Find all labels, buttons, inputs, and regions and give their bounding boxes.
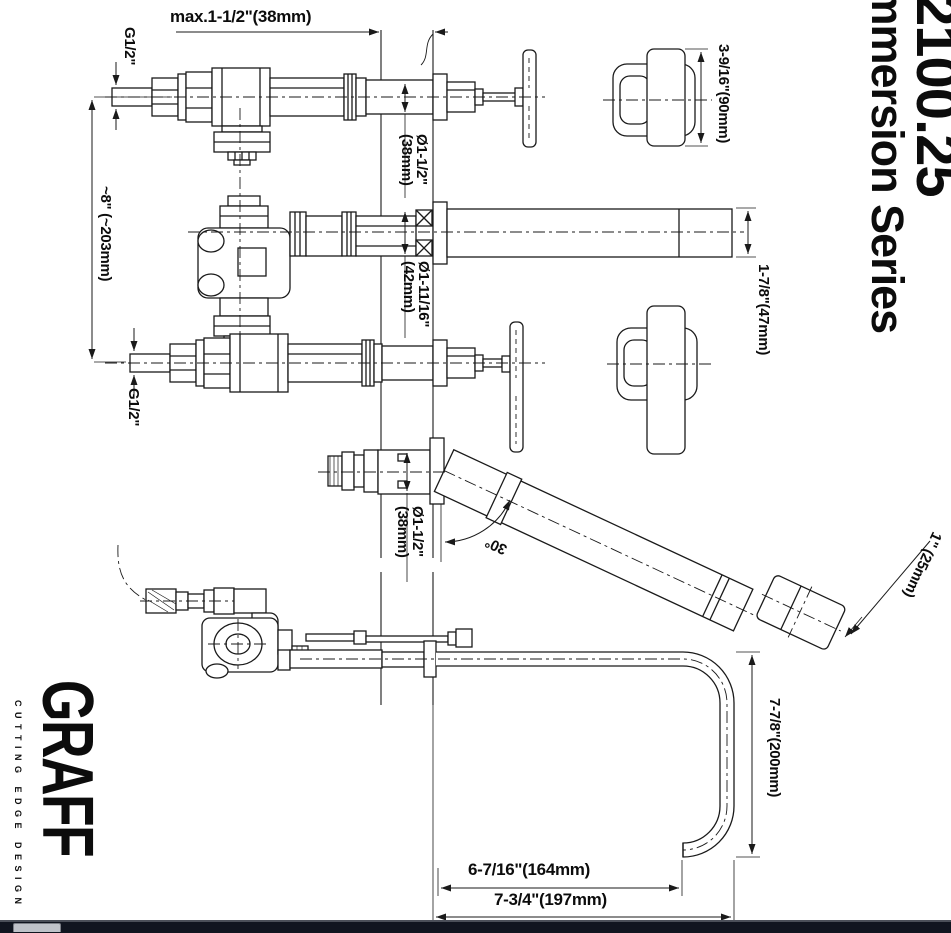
brand-tagline: CUTTING EDGE DESIGN [13,700,22,910]
handshower-tip-detail [750,569,853,657]
brand-logo: GRAFF [30,680,103,856]
dim-handle-detail: 3-9/16"(90mm) [716,44,731,143]
dim-hook-drop: 7-7/8"(200mm) [767,698,782,797]
dim-valve-escutcheon-dia: Ø1-1/2" (38mm) [398,134,429,186]
dim-spout-escutcheon-dia: Ø1-11/16" (42mm) [400,261,431,327]
spec-sheet-page: max.1-1/2"(38mm) G1/2" G1/2" ~8" (~203mm… [0,0,951,933]
dim-spout-tube-dia: 1-7/8"(47mm) [756,264,771,355]
dim-inlet-top: G1/2" [122,27,137,65]
dim-hook-reach-outer: 7-3/4"(197mm) [494,891,607,908]
handle-detail-top [613,49,695,146]
hook-spout-view [146,588,734,857]
dim-hook-reach-inner: 6-7/16"(164mm) [468,861,590,878]
dim-wall-thickness: max.1-1/2"(38mm) [170,8,311,25]
technical-drawing [0,0,951,933]
page-title-model-number: 2100.25 [907,0,951,197]
handle-detail-bottom [617,306,697,454]
dim-inlet-bottom: G1/2" [126,388,141,426]
bottom-valve-view [130,322,523,452]
window-edge-tab [13,923,61,932]
page-title-series: Immersion Series [864,0,910,333]
top-valve-view [112,50,536,165]
window-edge-bar [0,920,951,933]
dim-handshower-escutcheon-dia: Ø1-1/2" (38mm) [394,506,425,558]
dim-valve-center-distance: ~8" (~203mm) [98,186,113,281]
